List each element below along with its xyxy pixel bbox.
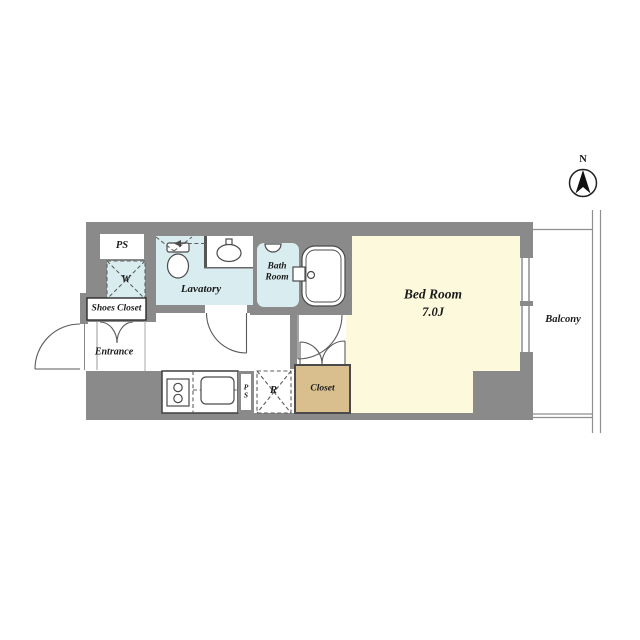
ps-bottom-label: P S [244,384,249,401]
compass-north-icon [570,170,597,197]
shoes-closet-door-arcs [100,322,133,343]
closet-label: Closet [310,384,334,395]
closet-door-arcs [300,341,345,364]
burner-icon [174,383,182,391]
ps-bottom-line2: S [244,392,249,400]
balcony-label: Balcony [545,314,581,326]
door-opening-lavatory [205,305,247,313]
burner-icon [174,394,182,402]
window [520,258,533,352]
washer-label: W [121,274,130,286]
entrance-door-arc [35,324,80,369]
bathroom-label: Bath Room [265,261,288,282]
wall-bottom-left-block [86,371,162,420]
lavatory-label: Lavatory [181,283,221,295]
entrance-label: Entrance [95,346,133,357]
lavatory-door-arc [207,313,247,353]
wall-bedroom-notch [473,371,533,420]
compass-label: N [579,154,587,166]
toilet-bowl-icon [168,254,189,278]
kitchen-sink-icon [201,377,234,404]
bathroom-label-line1: Bath [265,261,288,272]
bedroom-door-arc [298,315,342,359]
sink-icon [217,245,241,262]
wall-door-jamb [290,313,297,369]
wall-right-upper [520,236,533,258]
kitchen-counter [162,371,238,413]
shoes-closet-label: Shoes Closet [92,304,142,315]
ps-top-label: PS [116,240,128,252]
bathtub-drain-icon [308,272,315,279]
bath-faucet-icon [293,267,305,281]
bathroom-label-line2: Room [265,272,288,283]
refrigerator-label: R [270,385,277,397]
floor-plan-drawing [0,0,640,640]
floor-plan: N PS W Lavatory Bath Room Shoes Closet E… [0,0,640,640]
bedroom-size-label: 7.0J [422,305,444,319]
wall-right-lower [520,352,533,371]
bedroom-label: Bed Room [404,286,462,301]
